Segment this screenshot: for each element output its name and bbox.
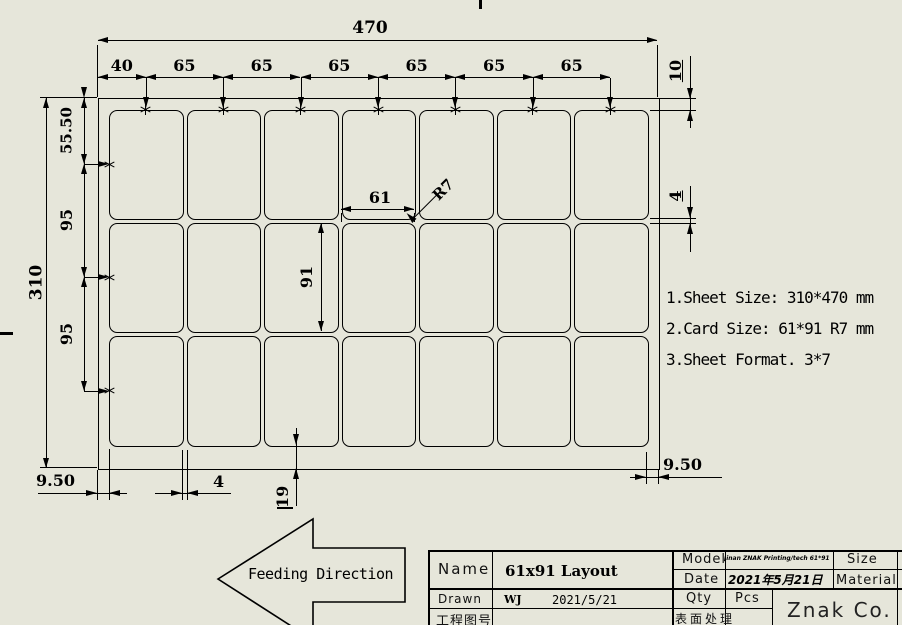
- card: [342, 223, 417, 333]
- dim-label-col-segment: 65: [319, 58, 359, 74]
- dim-label-col-segment: 65: [397, 58, 437, 74]
- dim-label-row-gap: 4: [668, 188, 684, 204]
- dim-line-card-height: [321, 223, 322, 331]
- card: [497, 336, 572, 446]
- extension-line: [341, 213, 342, 222]
- card: [264, 110, 339, 220]
- dim-line-col-segment: [98, 77, 146, 78]
- dim-label-col-segment: 65: [552, 58, 592, 74]
- dim-arrow: [109, 490, 120, 496]
- dim-line-row-pitch: [84, 277, 85, 391]
- model-value: Jinan ZNAK Printing/tech 61*91: [724, 555, 830, 562]
- dim-label-row-pitch: 95: [59, 207, 75, 233]
- card: [419, 110, 494, 220]
- center-mark-left: [0, 332, 13, 335]
- title-block-line: [772, 588, 773, 625]
- dim-label-card-height: 91: [299, 264, 315, 290]
- dim-label-margin-right: 9.50: [663, 457, 702, 473]
- dim-arrow: [293, 468, 299, 479]
- dim-arrow: [635, 474, 646, 480]
- dim-label-sheet-width: 470: [340, 20, 400, 37]
- card: [574, 223, 649, 333]
- title-block-border: [428, 550, 902, 552]
- note-card-size: 2.Card Size: 61*91 R7 mm: [666, 319, 873, 338]
- dim-arrow: [298, 97, 304, 108]
- dim-label-margin-left: 9.50: [36, 473, 75, 489]
- dim-arrow: [143, 97, 149, 108]
- card: [109, 223, 184, 333]
- dim-line-col-segment: [455, 77, 532, 78]
- card: [419, 223, 494, 333]
- drawn-date: 2021/5/21: [552, 593, 617, 607]
- dim-label-col-segment: 40: [102, 58, 142, 74]
- dim-line-col-segment: [146, 77, 223, 78]
- dim-tick: [277, 507, 293, 509]
- dim-arrow: [293, 434, 299, 445]
- model-label: Model: [682, 552, 726, 567]
- dim-arrow: [658, 474, 669, 480]
- material-label: Material: [836, 573, 897, 588]
- size-label: Size: [847, 552, 878, 567]
- date-value: 2021年5月21日: [728, 571, 822, 588]
- dim-label-top-margin: 10: [668, 58, 684, 84]
- dim-label-row-pitch: 95: [59, 321, 75, 347]
- dim-arrow: [86, 490, 97, 496]
- project-no-label: 工程图号: [436, 610, 492, 625]
- title-block-line: [428, 588, 902, 590]
- dim-line-row-first: [84, 98, 85, 164]
- dim-arrow: [687, 88, 693, 99]
- card: [342, 336, 417, 446]
- card: [419, 336, 494, 446]
- dim-arrow: [98, 388, 109, 394]
- surface-treatment-label: 表面处理: [675, 610, 735, 625]
- drawn-value: WJ: [504, 593, 522, 606]
- title-block-border: [428, 550, 430, 625]
- dim-label-bottom-margin: 19: [275, 486, 291, 508]
- extension-line: [657, 45, 658, 97]
- card: [574, 336, 649, 446]
- dim-label-sheet-height: 310: [29, 263, 46, 303]
- dim-arrow: [220, 97, 226, 108]
- card: [574, 110, 649, 220]
- dim-label-col-segment: 65: [164, 58, 204, 74]
- dim-arrow: [98, 161, 109, 167]
- card: [109, 336, 184, 446]
- card: [187, 336, 262, 446]
- note-sheet-format: 3.Sheet Format. 3*7: [666, 350, 830, 369]
- dim-arrow: [452, 97, 458, 108]
- dim-arrow: [171, 490, 182, 496]
- qty-label: Qty: [686, 591, 712, 606]
- dim-arrow: [687, 223, 693, 234]
- dim-arrow: [607, 97, 613, 108]
- date-label: Date: [684, 572, 719, 587]
- drawn-label: Drawn: [438, 592, 482, 606]
- card: [264, 336, 339, 446]
- title-block-line: [897, 550, 898, 625]
- dim-line-col-segment: [378, 77, 455, 78]
- dim-arrow: [687, 110, 693, 121]
- center-mark-top: [479, 0, 482, 9]
- title-block-line: [428, 608, 772, 609]
- title-block-line: [672, 569, 902, 570]
- dim-line-col-segment: [223, 77, 300, 78]
- dim-label-col-segment: 65: [474, 58, 514, 74]
- dim-line-sheet-width: [98, 40, 657, 41]
- card: [497, 110, 572, 220]
- extension-line: [646, 452, 647, 484]
- name-label: Name: [438, 560, 490, 578]
- card: [187, 223, 262, 333]
- title-block-line: [672, 550, 674, 625]
- dim-line-row-pitch: [84, 164, 85, 277]
- cad-drawing-screen: 40656565656565 470 10 4 310 55.50 95 95 …: [0, 0, 902, 625]
- dim-label-col-gap: 4: [213, 474, 224, 490]
- card: [109, 110, 184, 220]
- dim-label-col-segment: 65: [242, 58, 282, 74]
- name-value: 61x91 Layout: [505, 562, 618, 580]
- feeding-direction-label: Feeding Direction: [248, 565, 393, 583]
- extension-line: [97, 470, 98, 500]
- dim-line-col-segment: [533, 77, 610, 78]
- dim-arrow: [530, 97, 536, 108]
- dim-line-col-segment: [301, 77, 378, 78]
- card: [187, 110, 262, 220]
- dim-line-card-width: [341, 209, 414, 210]
- title-block-line: [492, 550, 493, 625]
- card: [497, 223, 572, 333]
- company-name: Znak Co.: [787, 598, 892, 622]
- dim-arrow: [687, 207, 693, 218]
- dim-label-card-width: 61: [359, 190, 401, 206]
- dim-line-row-gap: [690, 186, 691, 252]
- note-sheet-size: 1.Sheet Size: 310*470 mm: [666, 288, 873, 307]
- qty-unit: Pcs: [735, 591, 760, 606]
- dim-arrow: [375, 97, 381, 108]
- extension-line: [97, 45, 98, 97]
- dim-label-row-first: 55.50: [60, 105, 75, 157]
- dim-arrow: [187, 490, 198, 496]
- title-block-line: [833, 550, 834, 588]
- dim-arrow: [98, 274, 109, 280]
